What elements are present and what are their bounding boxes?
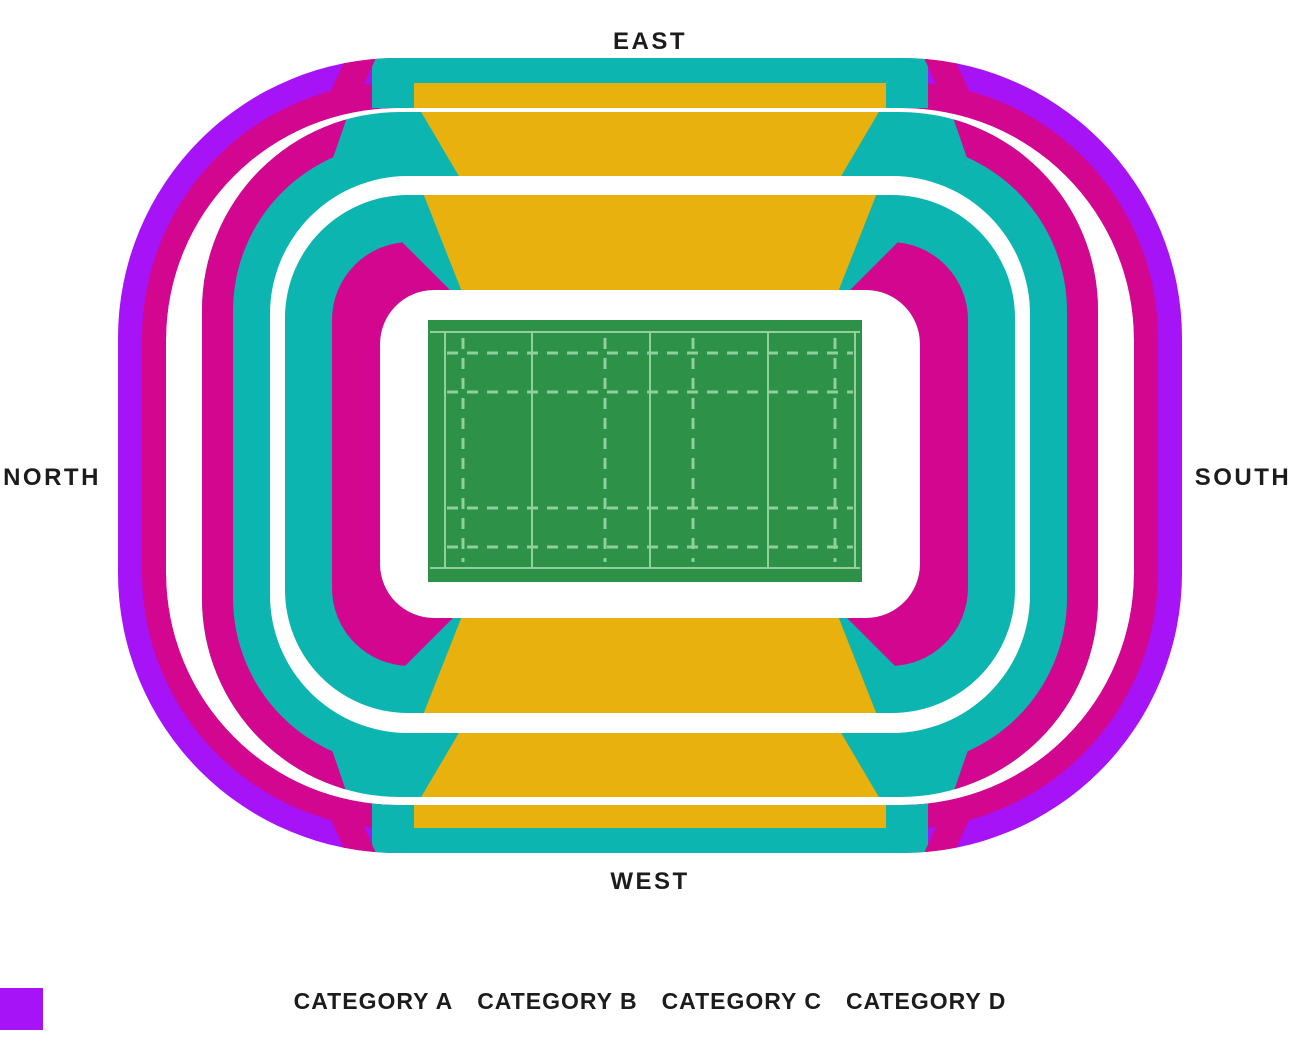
section-east-upper-cat-a[interactable] bbox=[414, 83, 886, 108]
legend-label-category-a: CATEGORY A bbox=[294, 988, 454, 1015]
compass-label-west: WEST bbox=[610, 868, 689, 895]
legend-item-category-b: CATEGORY B bbox=[477, 988, 637, 1015]
compass-label-south: SOUTH bbox=[1195, 464, 1292, 491]
compass-label-north: NORTH bbox=[3, 464, 101, 491]
compass-label-east: EAST bbox=[613, 28, 687, 55]
stadium-seating-map: EAST WEST NORTH SOUTH CATEGORY A CATEGOR… bbox=[0, 0, 1300, 1050]
section-east-middle-cat-a[interactable] bbox=[420, 110, 880, 178]
stadium-svg: EAST WEST NORTH SOUTH bbox=[0, 0, 1300, 1050]
legend-label-category-d: CATEGORY D bbox=[846, 988, 1006, 1015]
legend-item-category-d: CATEGORY D bbox=[846, 988, 1006, 1015]
legend-item-category-a: CATEGORY A bbox=[294, 988, 454, 1015]
legend-label-category-b: CATEGORY B bbox=[477, 988, 637, 1015]
legend: CATEGORY A CATEGORY B CATEGORY C CATEGOR… bbox=[0, 988, 1300, 1015]
section-east-lower-cat-a[interactable] bbox=[423, 193, 877, 292]
category-d-swatch bbox=[0, 988, 43, 1030]
pitch-grass bbox=[428, 320, 862, 582]
legend-label-category-c: CATEGORY C bbox=[662, 988, 822, 1015]
section-west-upper-cat-a[interactable] bbox=[414, 805, 886, 828]
legend-item-category-c: CATEGORY C bbox=[662, 988, 822, 1015]
section-west-lower-cat-a[interactable] bbox=[423, 616, 877, 715]
section-west-middle-cat-a[interactable] bbox=[420, 731, 880, 799]
rugby-pitch bbox=[428, 320, 862, 582]
